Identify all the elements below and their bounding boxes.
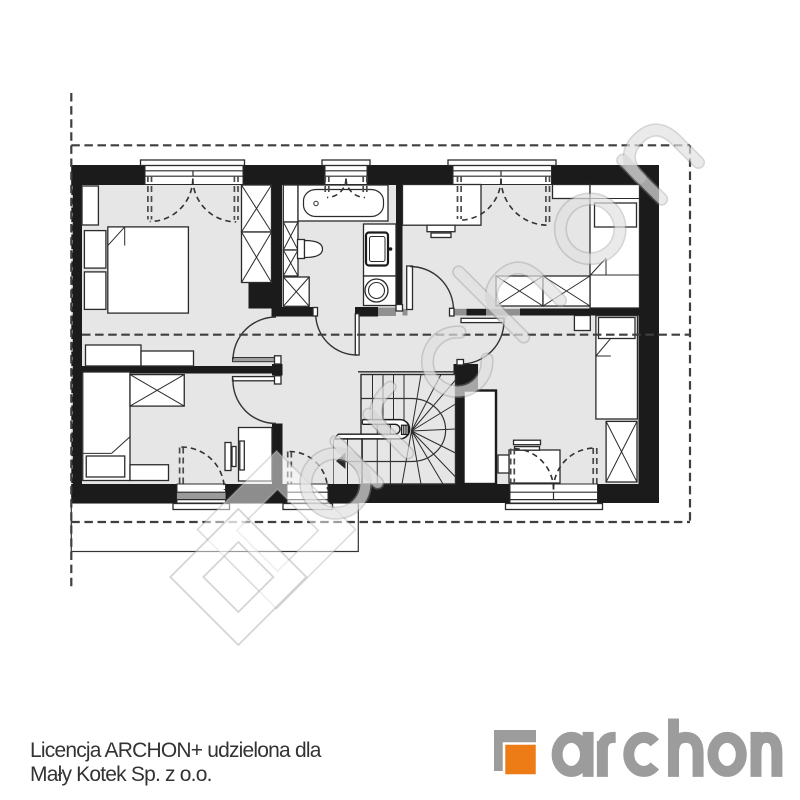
svg-text:Licencja ARCHON+ udzielona dla: Licencja ARCHON+ udzielona dla <box>30 739 322 762</box>
svg-text:Mały Kotek Sp. z o.o.: Mały Kotek Sp. z o.o. <box>30 763 212 786</box>
